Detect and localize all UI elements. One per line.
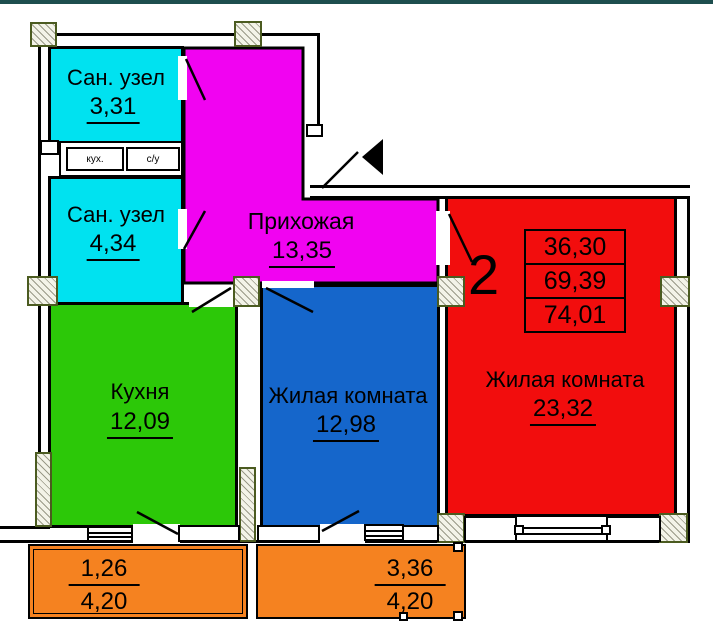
window-living-2 — [520, 533, 605, 535]
wall-stub — [257, 525, 320, 542]
door-opening-kitchen-balcony — [133, 524, 180, 533]
wall-column — [27, 276, 58, 306]
top-bar — [0, 0, 713, 4]
vent-label-bath: с/у — [147, 154, 160, 165]
wall-stub — [178, 525, 240, 542]
vent-box-bath: с/у — [126, 147, 180, 171]
summary-area-without-balcony: 69,39 — [526, 263, 624, 297]
door-opening-living-2 — [436, 211, 450, 265]
wall-column — [30, 22, 57, 47]
balcony-post — [453, 542, 463, 552]
room-area: 23,32 — [530, 396, 596, 426]
door-swing-sanuzel-1 — [186, 59, 205, 100]
room-area: 3,31 — [87, 94, 140, 124]
vent-label-kitchen: кух. — [86, 154, 103, 165]
wall-stub — [402, 525, 439, 542]
balcony-full-area: 4,20 — [69, 586, 140, 614]
wall-pier — [35, 452, 52, 527]
wall-column — [437, 513, 465, 543]
room-area: 4,34 — [87, 231, 140, 261]
window-living-1 — [364, 524, 404, 541]
outer-wall-right — [687, 186, 690, 543]
door-swing-sanuzel-2 — [184, 211, 205, 249]
wall-column — [437, 276, 465, 307]
balcony-left-areas: 1,26 4,20 — [69, 556, 140, 614]
window-post — [601, 525, 611, 535]
room-name: Кухня — [111, 380, 170, 404]
balcony-post — [453, 611, 463, 621]
window-kitchen — [87, 526, 133, 542]
room-area: 13,35 — [269, 238, 335, 268]
room-name: Сан. узел — [67, 66, 165, 90]
balcony-full-area: 4,20 — [375, 586, 446, 614]
summary-table: 36,30 69,39 74,01 — [524, 229, 626, 333]
wall-stub — [606, 516, 661, 542]
wall-column — [234, 21, 262, 47]
window-living-2 — [520, 527, 605, 529]
room-area: 12,09 — [107, 409, 173, 439]
wall-pier — [239, 467, 256, 542]
balcony-reduced-area: 3,36 — [375, 556, 446, 586]
room-name: Сан. узел — [67, 203, 165, 227]
floor-plan: кух. с/у Сан. узел 3,31 Сан. узел 4,34 П… — [0, 0, 713, 630]
summary-living-area: 36,30 — [526, 231, 624, 263]
wall-column — [660, 276, 690, 307]
room-name: Жилая комната — [486, 368, 645, 392]
balcony-reduced-area: 1,26 — [69, 556, 140, 586]
summary-total-area: 74,01 — [526, 297, 624, 331]
balcony-right-areas: 3,36 4,20 — [375, 556, 446, 614]
door-opening-living1-balcony — [320, 524, 365, 533]
room-name: Прихожая — [248, 209, 355, 234]
door-swing-entrance — [322, 152, 358, 188]
wall-stub — [40, 140, 59, 155]
entrance-arrow-icon — [362, 139, 383, 175]
rooms-count: 2 — [468, 247, 499, 303]
room-name: Жилая комната — [269, 384, 428, 408]
vent-box-kitchen: кух. — [66, 147, 124, 171]
wall-column — [233, 276, 260, 307]
wall-stub — [464, 516, 517, 542]
outer-wall-top — [40, 33, 320, 36]
door-opening-living-1 — [262, 281, 314, 288]
door-opening-kitchen — [189, 299, 233, 307]
wall-stub — [306, 124, 323, 137]
wall-column — [659, 513, 688, 543]
window-post — [514, 525, 524, 535]
outer-wall-step — [317, 33, 320, 137]
door-opening-sanuzel-2 — [178, 209, 187, 249]
room-area: 12,98 — [313, 412, 379, 442]
door-opening-sanuzel-1 — [178, 56, 187, 100]
